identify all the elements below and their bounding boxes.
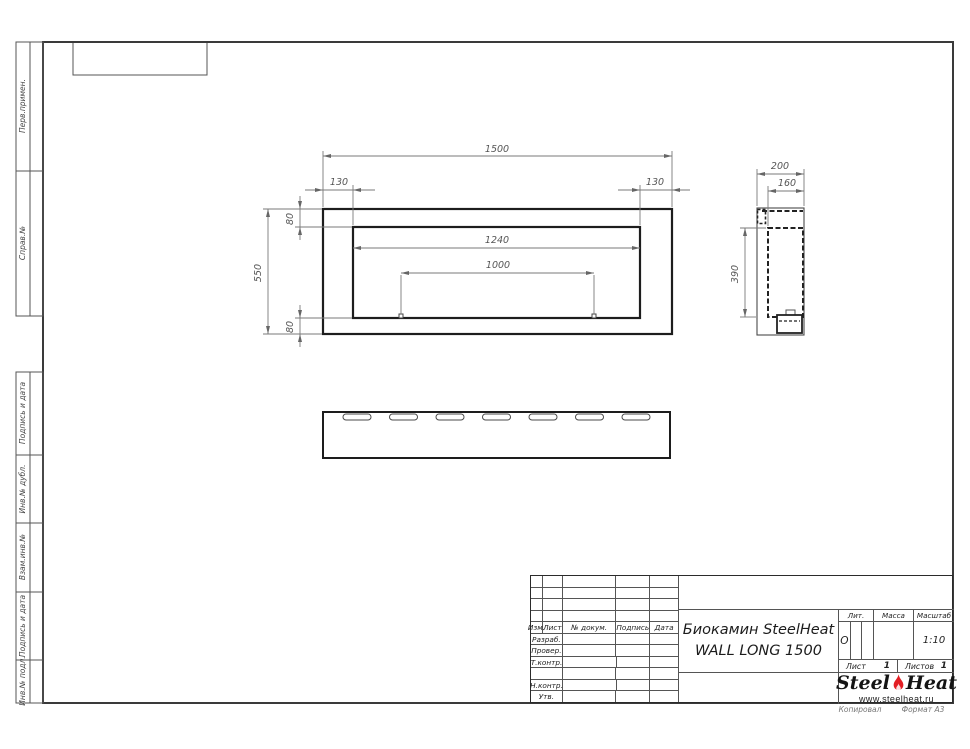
revision-row (531, 611, 678, 623)
sheet-number: 1 (884, 661, 890, 671)
signature-row: Т.контр. (531, 657, 678, 669)
lit-header: Лит. (839, 610, 874, 622)
side-view-burner-box (777, 315, 802, 333)
col-podpis: Подпись (616, 622, 650, 633)
label-tkontr: Т.контр. (531, 657, 563, 668)
dim-left-offset: 130 (330, 177, 348, 188)
scale-value: 1:10 (914, 622, 954, 660)
sheets-label: Листов (905, 662, 934, 671)
title-block: Изм. Лист № докум. Подпись Дата Разраб. … (530, 575, 953, 703)
stamp-inv-podl: Инв.№ подл. (18, 656, 27, 705)
sheet-label: Лист (846, 662, 866, 671)
revision-header-row: Изм. Лист № докум. Подпись Дата (531, 622, 678, 634)
side-view (757, 208, 804, 335)
col-data: Дата (650, 622, 678, 633)
dim-right-offset: 130 (646, 177, 664, 188)
dim-bottom-offset: 80 (285, 321, 296, 333)
dim-opening-width: 1240 (485, 235, 509, 246)
vent-slot (436, 414, 464, 420)
signature-row (531, 668, 678, 680)
product-name-cell: Биокамин SteelHeat WALL LONG 1500 (679, 610, 839, 673)
col-izm: Изм. (531, 622, 543, 633)
stamp-inv-dubl: Инв.№ дубл. (18, 465, 27, 514)
col-dokum: № докум. (563, 622, 617, 633)
flame-icon (892, 674, 905, 693)
label-blank (531, 668, 563, 679)
burner-mark-left (399, 314, 403, 318)
stamp-sprav-no: Справ.№ (18, 226, 27, 260)
lit-value-cells: О (839, 622, 874, 660)
dim-top-offset: 80 (285, 213, 296, 225)
stamp-vzam-inv: Взам.инв.№ (18, 534, 27, 580)
dim-burner-width: 1000 (486, 260, 510, 271)
stamp-perv-primen: Перв.примен. (18, 79, 27, 133)
format-label: Формат А3 (893, 705, 953, 714)
mass-value (874, 622, 914, 660)
dim-inner-height: 390 (730, 265, 741, 283)
mass-header: Масса (874, 610, 914, 622)
label-utv: Утв. (531, 691, 563, 702)
drawing-sheet: Перв.примен. Справ.№ Подпись и дата Инв.… (0, 0, 970, 749)
company-logo-cell: Steel Heat www.steelheat.ru (839, 673, 954, 704)
steelheat-logo: Steel Heat (836, 674, 957, 693)
bottom-view (323, 412, 670, 458)
sheets-total: 1 (941, 661, 947, 671)
revision-row (531, 576, 678, 588)
vent-slot (390, 414, 418, 420)
logo-website: www.steelheat.ru (859, 694, 934, 704)
label-nkontr: Н.контр. (531, 680, 563, 691)
dim-overall-height: 550 (253, 264, 264, 282)
logo-word-heat: Heat (906, 674, 957, 693)
product-name-line2: WALL LONG 1500 (695, 641, 822, 662)
label-razrab: Разраб. (531, 634, 563, 645)
vent-slot (529, 414, 557, 420)
lit-value: О (839, 622, 851, 659)
logo-word-steel: Steel (836, 674, 890, 693)
stamp-podpis-data-2: Подпись и дата (18, 595, 27, 658)
vent-slot (576, 414, 604, 420)
revision-row (531, 599, 678, 611)
col-list: Лист (543, 622, 563, 633)
stamp-podpis-data-1: Подпись и дата (18, 382, 27, 445)
top-left-doc-box (73, 43, 207, 75)
dim-overall-width: 1500 (485, 144, 509, 155)
material-cell (679, 673, 839, 704)
signature-row: Разраб. (531, 634, 678, 646)
signature-row: Провер. (531, 645, 678, 657)
copied-label: Копировал (830, 705, 890, 714)
vent-slot (483, 414, 511, 420)
scale-header: Масштаб (914, 610, 954, 622)
document-designation-cell (679, 576, 954, 610)
signature-row: Н.контр. (531, 680, 678, 692)
vent-slot (622, 414, 650, 420)
burner-mark-right (592, 314, 596, 318)
signature-row: Утв. (531, 691, 678, 702)
title-block-left-section: Изм. Лист № докум. Подпись Дата Разраб. … (531, 576, 679, 702)
dim-depth: 200 (771, 161, 789, 172)
revision-row (531, 588, 678, 600)
vent-slot (343, 414, 371, 420)
front-view (323, 209, 672, 334)
label-prover: Провер. (531, 645, 563, 656)
product-name-line1: Биокамин SteelHeat (683, 620, 835, 641)
dim-inner-depth: 160 (778, 178, 796, 189)
